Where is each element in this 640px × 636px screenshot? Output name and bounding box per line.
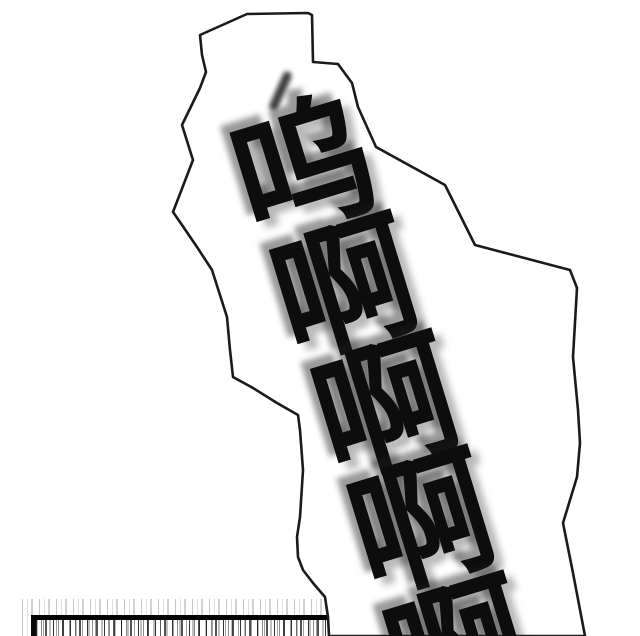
- manga-panel: 呜 啊 啊 啊 啊: [0, 0, 640, 636]
